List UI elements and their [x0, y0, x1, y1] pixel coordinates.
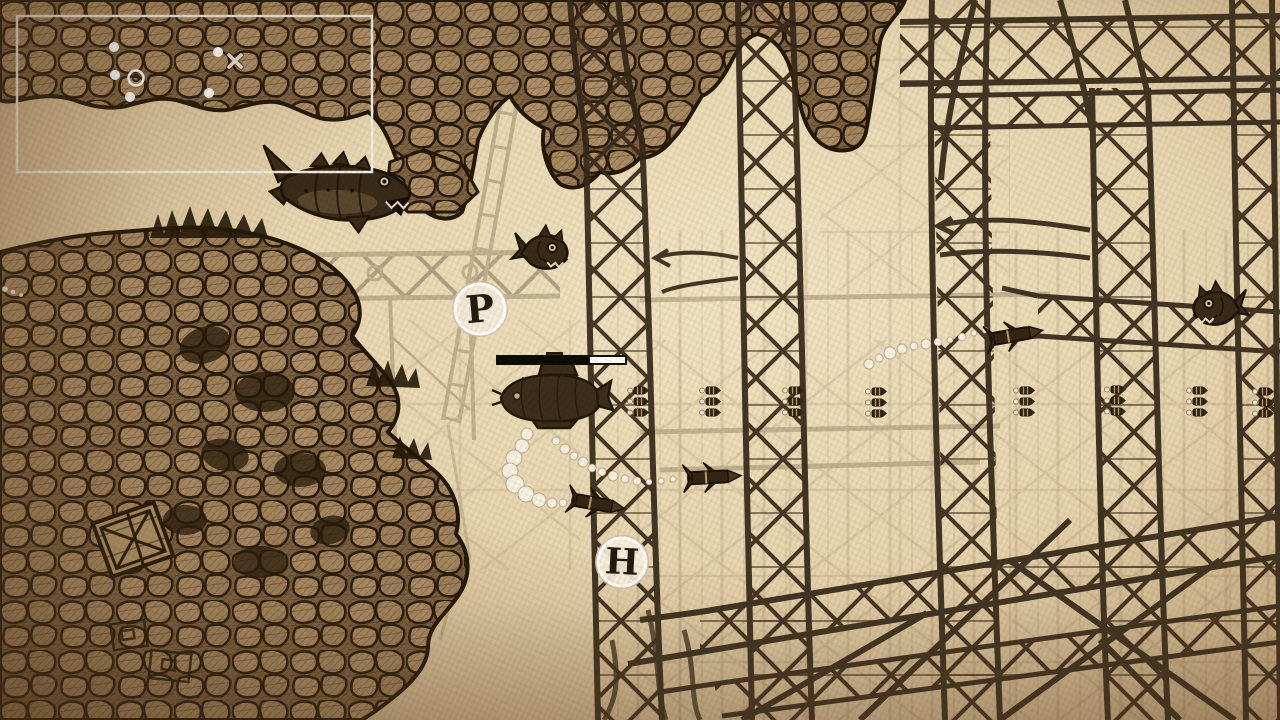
- bubble: [532, 493, 546, 507]
- powerup-p-letter: P: [464, 285, 496, 332]
- bubble: [560, 444, 570, 454]
- bubble: [11, 290, 16, 295]
- bubble: [646, 479, 652, 485]
- enemy-mecha-shark: [261, 145, 412, 234]
- bubble: [947, 337, 953, 343]
- bubble: [547, 498, 557, 508]
- bubble: [608, 471, 618, 481]
- bubble: [19, 293, 23, 297]
- bubble: [658, 478, 664, 484]
- bubble: [910, 342, 918, 350]
- bubble: [958, 333, 966, 341]
- bubble: [864, 359, 874, 369]
- bubble: [588, 464, 596, 472]
- ammo-pickup-stack: [628, 387, 650, 416]
- ammo-pickup-stack: [783, 387, 805, 416]
- minimap-blip: [109, 42, 119, 52]
- ammo-pickup-stack: [1105, 386, 1127, 415]
- bubble: [921, 339, 931, 349]
- bubble: [934, 338, 942, 346]
- bubble: [897, 344, 907, 354]
- bubble: [598, 468, 606, 476]
- bubble: [875, 354, 883, 362]
- bubble: [521, 428, 533, 440]
- bubble: [552, 437, 560, 445]
- minimap-blip: [110, 70, 120, 80]
- bubble: [570, 452, 578, 460]
- minimap-blip: [213, 47, 223, 57]
- minimap-cross-marker: [229, 55, 241, 67]
- game-viewport[interactable]: P H: [0, 0, 1280, 720]
- health-bar: [497, 356, 626, 364]
- bubble: [621, 475, 629, 483]
- bubble: [884, 347, 896, 359]
- powerup-pickup-p: P: [453, 282, 507, 336]
- minimap-blip: [204, 88, 214, 98]
- bubble: [559, 499, 567, 507]
- bubble: [578, 457, 588, 467]
- bubble: [2, 286, 8, 292]
- bubble: [971, 330, 977, 336]
- health-h-letter: H: [604, 540, 640, 584]
- bubble: [670, 476, 676, 482]
- ammo-pickup-stack: [1187, 387, 1209, 416]
- health-bar-fill: [497, 356, 590, 364]
- ammo-pickup-stack: [1253, 388, 1275, 417]
- ammo-pickup-stack: [700, 387, 722, 416]
- bubble: [633, 477, 641, 485]
- health-pickup-h: H: [596, 536, 648, 588]
- game-scene: P H: [0, 0, 1280, 720]
- ammo-pickup-stack: [866, 388, 888, 417]
- ammo-pickup-stack: [1014, 387, 1036, 416]
- minimap-blip: [125, 92, 135, 102]
